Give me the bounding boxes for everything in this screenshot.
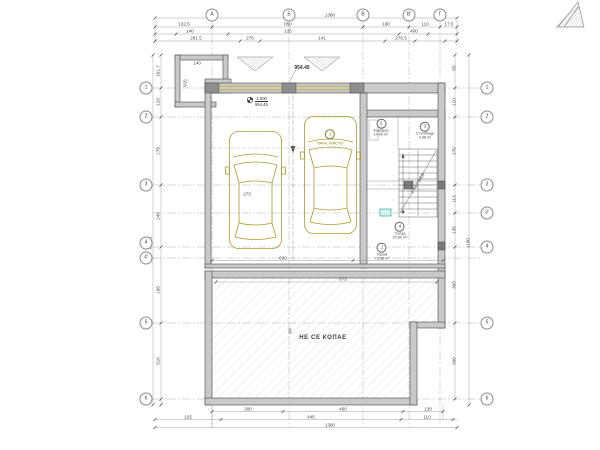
no-dig-area-hatch — [212, 278, 438, 398]
plan-linework — [0, 0, 600, 450]
car-2 — [301, 117, 361, 234]
interior-partitions — [367, 117, 438, 189]
logo-mark — [556, 2, 584, 28]
teal-shaft-fixture — [380, 209, 391, 216]
section-line — [212, 95, 359, 263]
door-vent-triangles — [237, 57, 340, 71]
car-1 — [226, 132, 286, 249]
drawing-sheet: НЕ СЕ КОПАЕ 954.45 -1.000 954.45 1380132… — [0, 0, 600, 450]
